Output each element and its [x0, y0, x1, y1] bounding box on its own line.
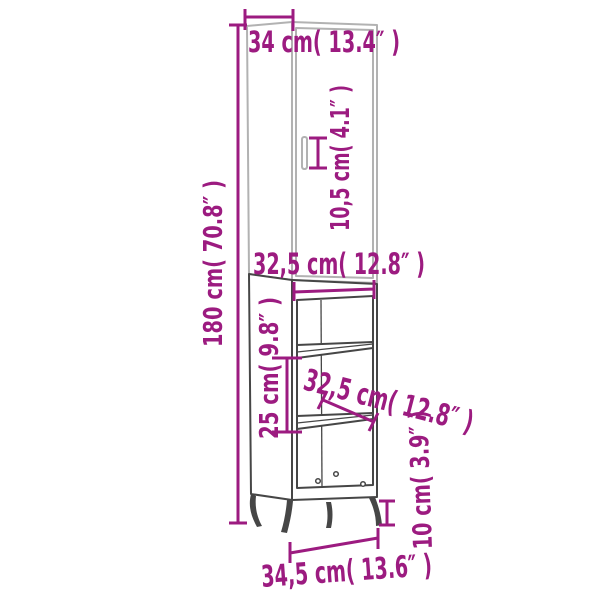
- cam-hole: [361, 482, 366, 487]
- dim-label-compartment-height: 25 cm( 9.8″ ): [255, 297, 285, 439]
- dim-label-total-height: 180 cm( 70.8″ ): [199, 180, 229, 347]
- dim-label-leg-height: 10 cm( 3.9″ ): [404, 410, 439, 550]
- dim-label-base-width: 34,5 cm( 13.6″ ): [260, 548, 433, 595]
- cam-hole: [316, 479, 321, 484]
- cabinet-leg-back-left: [250, 494, 262, 527]
- dim-label-top-depth: 34 cm( 13.4″ ): [248, 25, 400, 59]
- cabinet-upper-section: [247, 22, 377, 283]
- dim-line-total-height: [229, 25, 247, 523]
- upper-side-panel: [247, 22, 292, 280]
- furniture-dimension-diagram: 34 cm( 13.4″ ) 180 cm( 70.8″ ) 10,5 cm( …: [0, 0, 600, 600]
- cabinet-leg-front-left: [281, 500, 293, 533]
- dim-label-handle-length: 10,5 cm( 4.1″ ): [326, 85, 356, 231]
- dim-label-inner-width: 32,5 cm( 12.8″ ): [253, 247, 425, 281]
- cam-hole: [334, 472, 339, 477]
- cabinet-leg-back-right: [326, 502, 333, 528]
